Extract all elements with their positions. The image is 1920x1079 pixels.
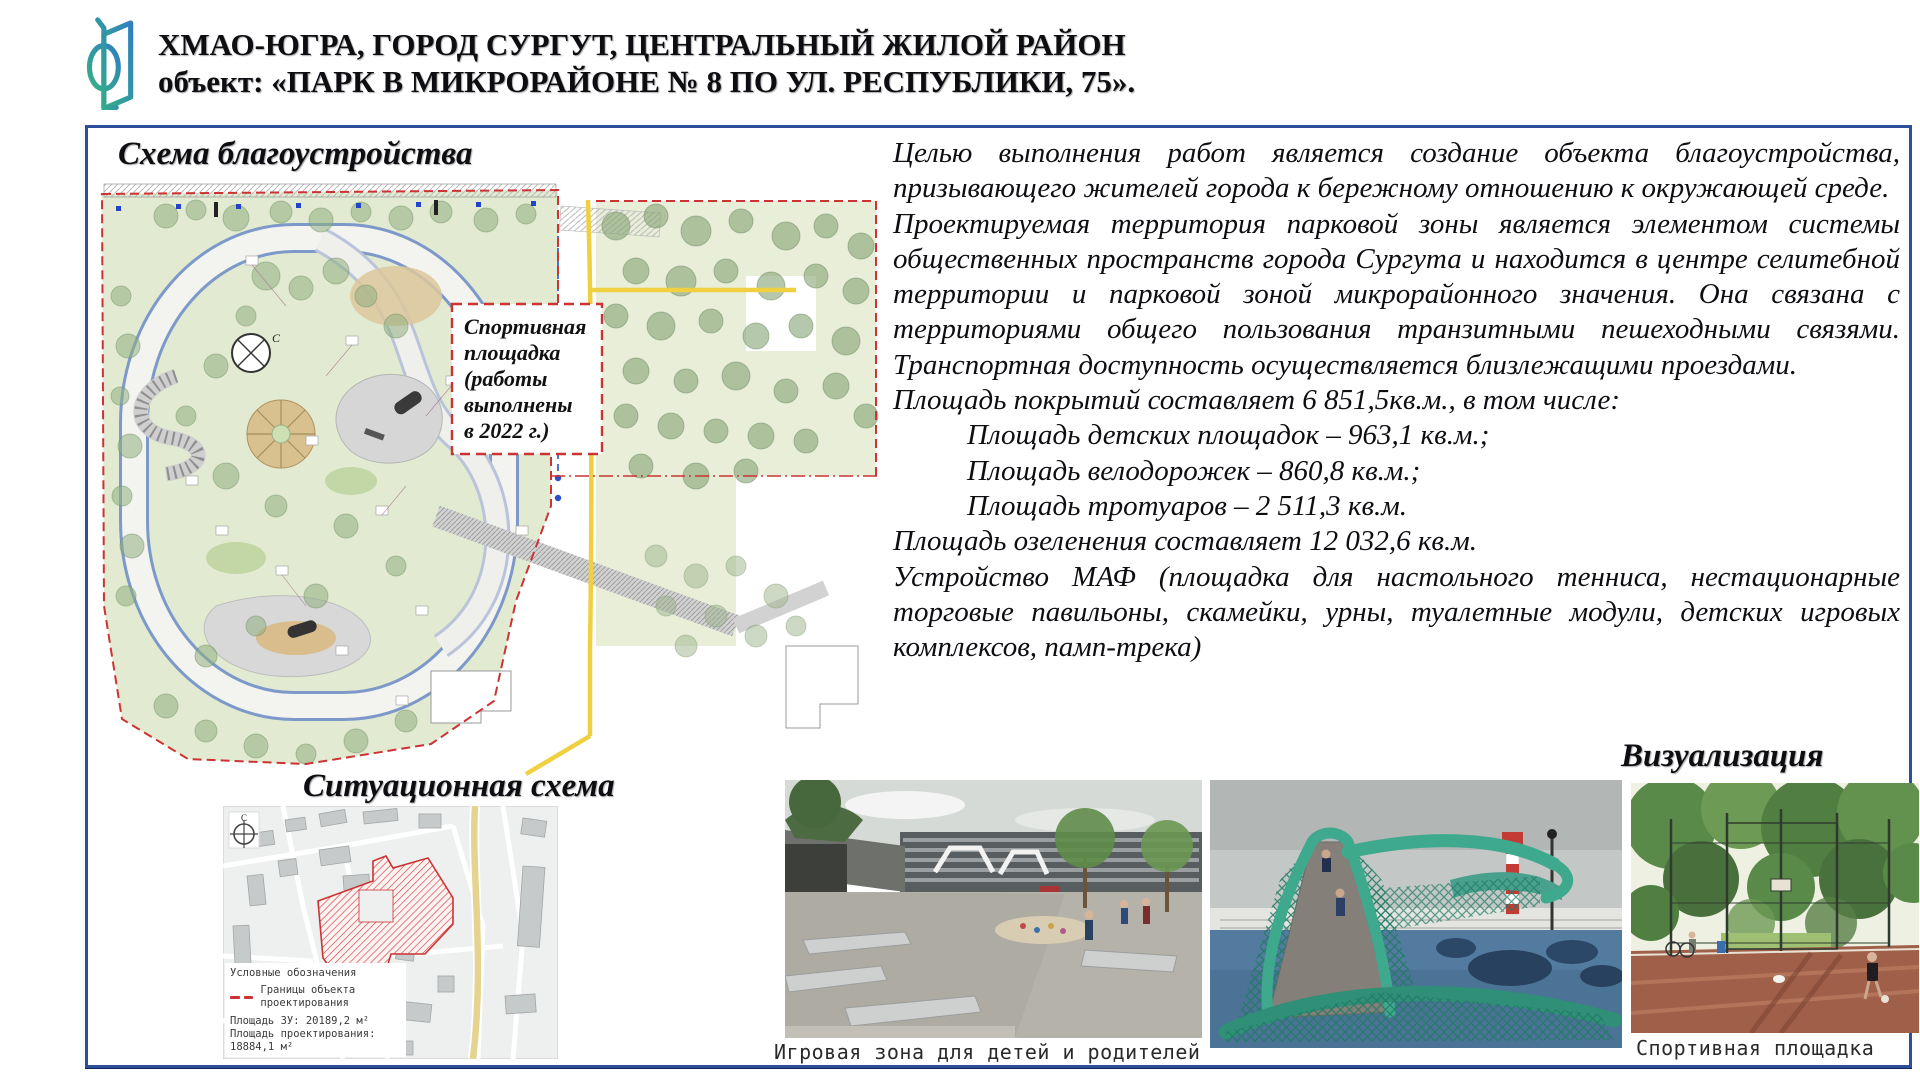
- maf-line: Устройство МАФ (площадка для настольного…: [893, 560, 1900, 666]
- visualization-title: Визуализация: [1621, 738, 1824, 775]
- area-item: Площадь детских площадок – 963,1 кв.м.;: [893, 418, 1900, 453]
- svg-text:выполнены: выполнены: [464, 392, 573, 417]
- svg-text:Спортивная: Спортивная: [464, 314, 586, 339]
- area-item: Площадь велодорожек – 860,8 кв.м.;: [893, 454, 1900, 489]
- red-dash-icon: [244, 996, 254, 999]
- company-logo-icon: [74, 6, 142, 110]
- svg-text:С: С: [272, 331, 281, 345]
- photo-net-structure: [1210, 780, 1622, 1048]
- project-description: Целью выполнения работ является создание…: [893, 136, 1900, 665]
- map-compass-icon: С: [229, 812, 259, 848]
- sport-area-label: Спортивная площадка (работы выполнены в …: [452, 304, 602, 454]
- description-paragraph: Целью выполнения работ является создание…: [893, 136, 1900, 207]
- map-legend: Условные обозначения Границы объекта про…: [225, 963, 406, 1057]
- legend-area2: Площадь проектирования: 18884,1 м²: [230, 1028, 402, 1054]
- area-intro: Площадь покрытий составляет 6 851,5кв.м.…: [893, 383, 1900, 418]
- svg-text:в 2022 г.): в 2022 г.): [464, 418, 550, 443]
- svg-text:(работы: (работы: [464, 366, 547, 391]
- content-panel: Схема благоустройства: [85, 125, 1912, 1068]
- page-title-line2: объект: «ПАРК В МИКРОРАЙОНЕ № 8 ПО УЛ. Р…: [158, 63, 1658, 100]
- landscaping-plan-image: С Спортивная площадка (работы выполнены …: [96, 176, 884, 776]
- page-title-line1: ХМАО-ЮГРА, ГОРОД СУРГУТ, ЦЕНТРАЛЬНЫЙ ЖИЛ…: [158, 26, 1658, 63]
- photo-play-caption: Игровая зона для детей и родителей: [774, 1040, 1200, 1064]
- situational-map: С Условные обозначения Границы объекта п…: [223, 806, 558, 1059]
- photo-sport-caption: Спортивная площадка: [1636, 1036, 1874, 1060]
- photo-sport-ground: [1631, 783, 1919, 1033]
- description-paragraph: Проектируемая территория парковой зоны я…: [893, 207, 1900, 383]
- header: ХМАО-ЮГРА, ГОРОД СУРГУТ, ЦЕНТРАЛЬНЫЙ ЖИЛ…: [0, 0, 1920, 120]
- svg-text:С: С: [241, 813, 247, 823]
- greening-line: Площадь озеленения составляет 12 032,6 к…: [893, 524, 1900, 559]
- scheme-title: Схема благоустройства: [118, 136, 472, 173]
- svg-text:площадка: площадка: [464, 340, 560, 365]
- red-dash-icon: [230, 996, 240, 999]
- legend-title: Условные обозначения: [230, 967, 402, 980]
- legend-boundary-label: Границы объекта проектирования: [260, 984, 402, 1010]
- photo-play-zone: [785, 780, 1202, 1038]
- area-item: Площадь тротуаров – 2 511,3 кв.м.: [893, 489, 1900, 524]
- legend-area1: Площадь ЗУ: 20189,2 м²: [230, 1015, 402, 1028]
- situational-title: Ситуационная схема: [303, 768, 615, 805]
